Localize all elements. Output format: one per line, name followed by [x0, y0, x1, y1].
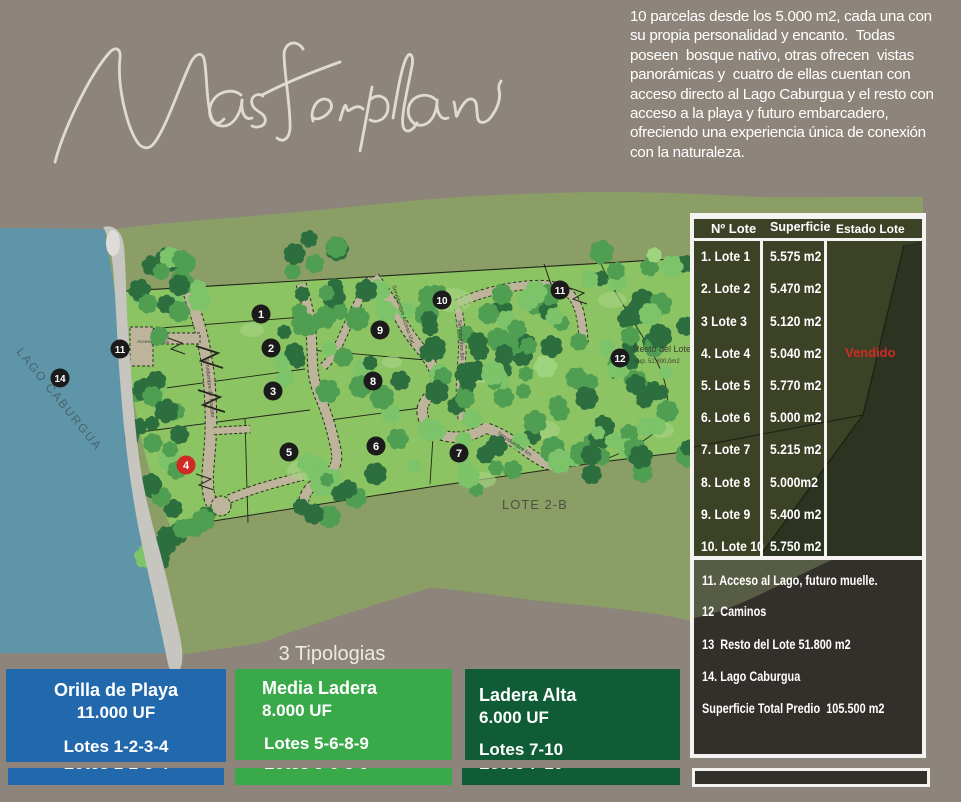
svg-text:7: 7 [456, 448, 462, 460]
svg-text:11: 11 [555, 286, 566, 297]
svg-text:1: 1 [258, 309, 264, 321]
svg-text:Resto del Lote: Resto del Lote [633, 344, 691, 354]
svg-text:3: 3 [270, 386, 276, 398]
svg-text:Sup. 51.800,0m2: Sup. 51.800,0m2 [634, 359, 680, 365]
svg-text:6: 6 [373, 441, 379, 453]
svg-text:4: 4 [183, 460, 190, 472]
svg-text:LOTE 2-B: LOTE 2-B [502, 497, 568, 512]
svg-text:8: 8 [370, 376, 376, 388]
svg-text:11: 11 [115, 345, 126, 356]
svg-text:9: 9 [377, 325, 383, 337]
svg-text:12: 12 [614, 354, 626, 365]
svg-text:2: 2 [268, 343, 274, 355]
svg-text:10: 10 [436, 296, 448, 307]
svg-text:14: 14 [54, 374, 66, 385]
svg-text:5: 5 [286, 447, 292, 459]
